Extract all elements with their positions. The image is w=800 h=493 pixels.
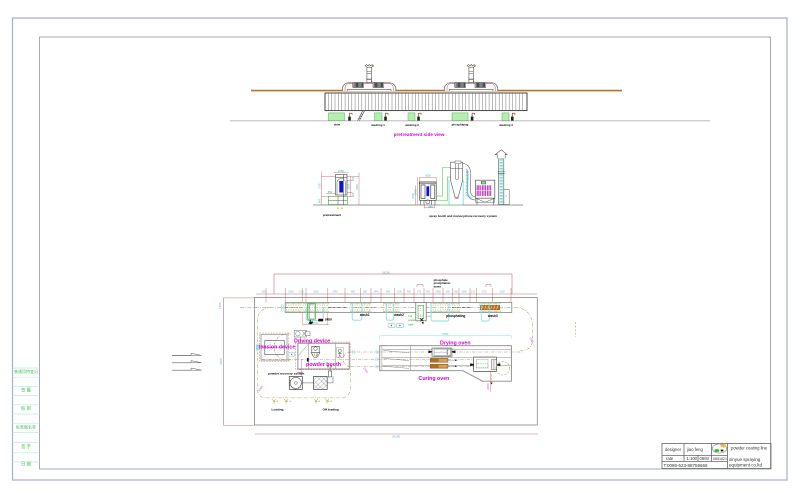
svg-text:skim: skim xyxy=(325,317,332,321)
svg-text:powder recovery system: powder recovery system xyxy=(268,372,305,376)
svg-text:2250: 2250 xyxy=(288,290,294,293)
svg-text:powder booth: powder booth xyxy=(306,362,341,368)
svg-text:washing 3: washing 3 xyxy=(498,123,513,127)
svg-text:pretreatment: pretreatment xyxy=(323,213,341,217)
svg-text:designer: designer xyxy=(665,447,682,452)
svg-text:6500: 6500 xyxy=(219,358,223,365)
svg-text:wash3: wash3 xyxy=(487,314,498,318)
svg-text:3330: 3330 xyxy=(355,184,359,190)
svg-text:850: 850 xyxy=(428,205,433,209)
svg-text:2200: 2200 xyxy=(499,290,505,293)
svg-text:washing 2: washing 2 xyxy=(404,123,419,127)
svg-text:0851621: 0851621 xyxy=(713,457,727,461)
svg-text:Driving device: Driving device xyxy=(294,339,330,345)
svg-text:phosphating: phosphating xyxy=(452,123,469,127)
svg-text:jiao feng: jiao feng xyxy=(686,447,704,452)
svg-text:200: 200 xyxy=(351,176,355,181)
svg-text:1500: 1500 xyxy=(218,302,222,309)
svg-text:rate: rate xyxy=(666,456,674,461)
svg-text:equipment co.ltd: equipment co.ltd xyxy=(729,463,763,468)
svg-text:spray booth and monocyclone re: spray booth and monocyclone recovery sys… xyxy=(429,214,497,218)
svg-text:Off loading: Off loading xyxy=(323,407,339,411)
svg-text:06/M: 06/M xyxy=(700,456,710,461)
svg-text:3000: 3000 xyxy=(312,322,318,325)
svg-text:900: 900 xyxy=(386,290,391,293)
svg-text:800: 800 xyxy=(446,290,451,293)
svg-text:600: 600 xyxy=(317,198,321,203)
svg-text:24250: 24250 xyxy=(382,270,391,274)
svg-text:1700: 1700 xyxy=(396,290,402,293)
svg-text:2000: 2000 xyxy=(486,383,490,390)
svg-text:200: 200 xyxy=(351,192,355,197)
svg-text:24250: 24250 xyxy=(392,435,401,439)
svg-text:178: 178 xyxy=(417,290,422,293)
svg-text:1445: 1445 xyxy=(373,290,379,293)
svg-text:powder coating line: powder coating line xyxy=(731,446,768,451)
svg-text:1700: 1700 xyxy=(298,290,304,293)
svg-text:800: 800 xyxy=(351,290,356,293)
svg-text:1550: 1550 xyxy=(338,169,344,173)
svg-text:phosphating: phosphating xyxy=(446,314,465,318)
svg-text:175: 175 xyxy=(471,290,476,293)
svg-text:Curing oven: Curing oven xyxy=(419,376,450,382)
svg-text:900: 900 xyxy=(363,290,368,293)
svg-text:1500: 1500 xyxy=(261,290,267,293)
svg-text:900: 900 xyxy=(407,290,412,293)
svg-text:900: 900 xyxy=(454,290,459,293)
svg-text:skim: skim xyxy=(334,123,341,127)
svg-text:2350: 2350 xyxy=(411,193,415,199)
svg-text:1450: 1450 xyxy=(435,290,441,293)
svg-text:普通用特变记: 普通用特变记 xyxy=(14,368,38,374)
svg-text:850: 850 xyxy=(328,190,333,194)
svg-text:900: 900 xyxy=(426,290,431,293)
svg-text:标准图名单: 标准图名单 xyxy=(16,424,36,430)
svg-text:1:100: 1:100 xyxy=(687,456,698,461)
svg-text:1350: 1350 xyxy=(347,183,351,189)
svg-text:tension device: tension device xyxy=(259,345,296,351)
svg-text:xinyue spraying: xinyue spraying xyxy=(729,457,761,462)
svg-text:T:0086-523-88759666: T:0086-523-88759666 xyxy=(664,463,709,468)
svg-text:Drying oven: Drying oven xyxy=(440,340,471,346)
svg-text:签 字: 签 字 xyxy=(21,443,32,449)
svg-text:7500: 7500 xyxy=(442,332,449,336)
svg-text:Loading: Loading xyxy=(272,407,284,411)
svg-text:签 置: 签 置 xyxy=(21,386,32,393)
svg-text:3000: 3000 xyxy=(313,290,319,293)
svg-text:2750: 2750 xyxy=(317,183,321,189)
svg-text:pretreatment side view: pretreatment side view xyxy=(394,132,445,137)
svg-text:wash1: wash1 xyxy=(359,313,370,317)
svg-text:1500: 1500 xyxy=(461,290,467,293)
svg-text:tank: tank xyxy=(408,322,414,326)
svg-text:wash2: wash2 xyxy=(393,313,404,317)
svg-text:1450: 1450 xyxy=(332,290,338,293)
svg-text:校 审: 校 审 xyxy=(21,405,32,412)
svg-text:1715: 1715 xyxy=(481,290,487,293)
svg-text:3000: 3000 xyxy=(425,174,431,178)
svg-text:tower: tower xyxy=(434,285,442,289)
svg-text:washing 1: washing 1 xyxy=(370,123,385,127)
